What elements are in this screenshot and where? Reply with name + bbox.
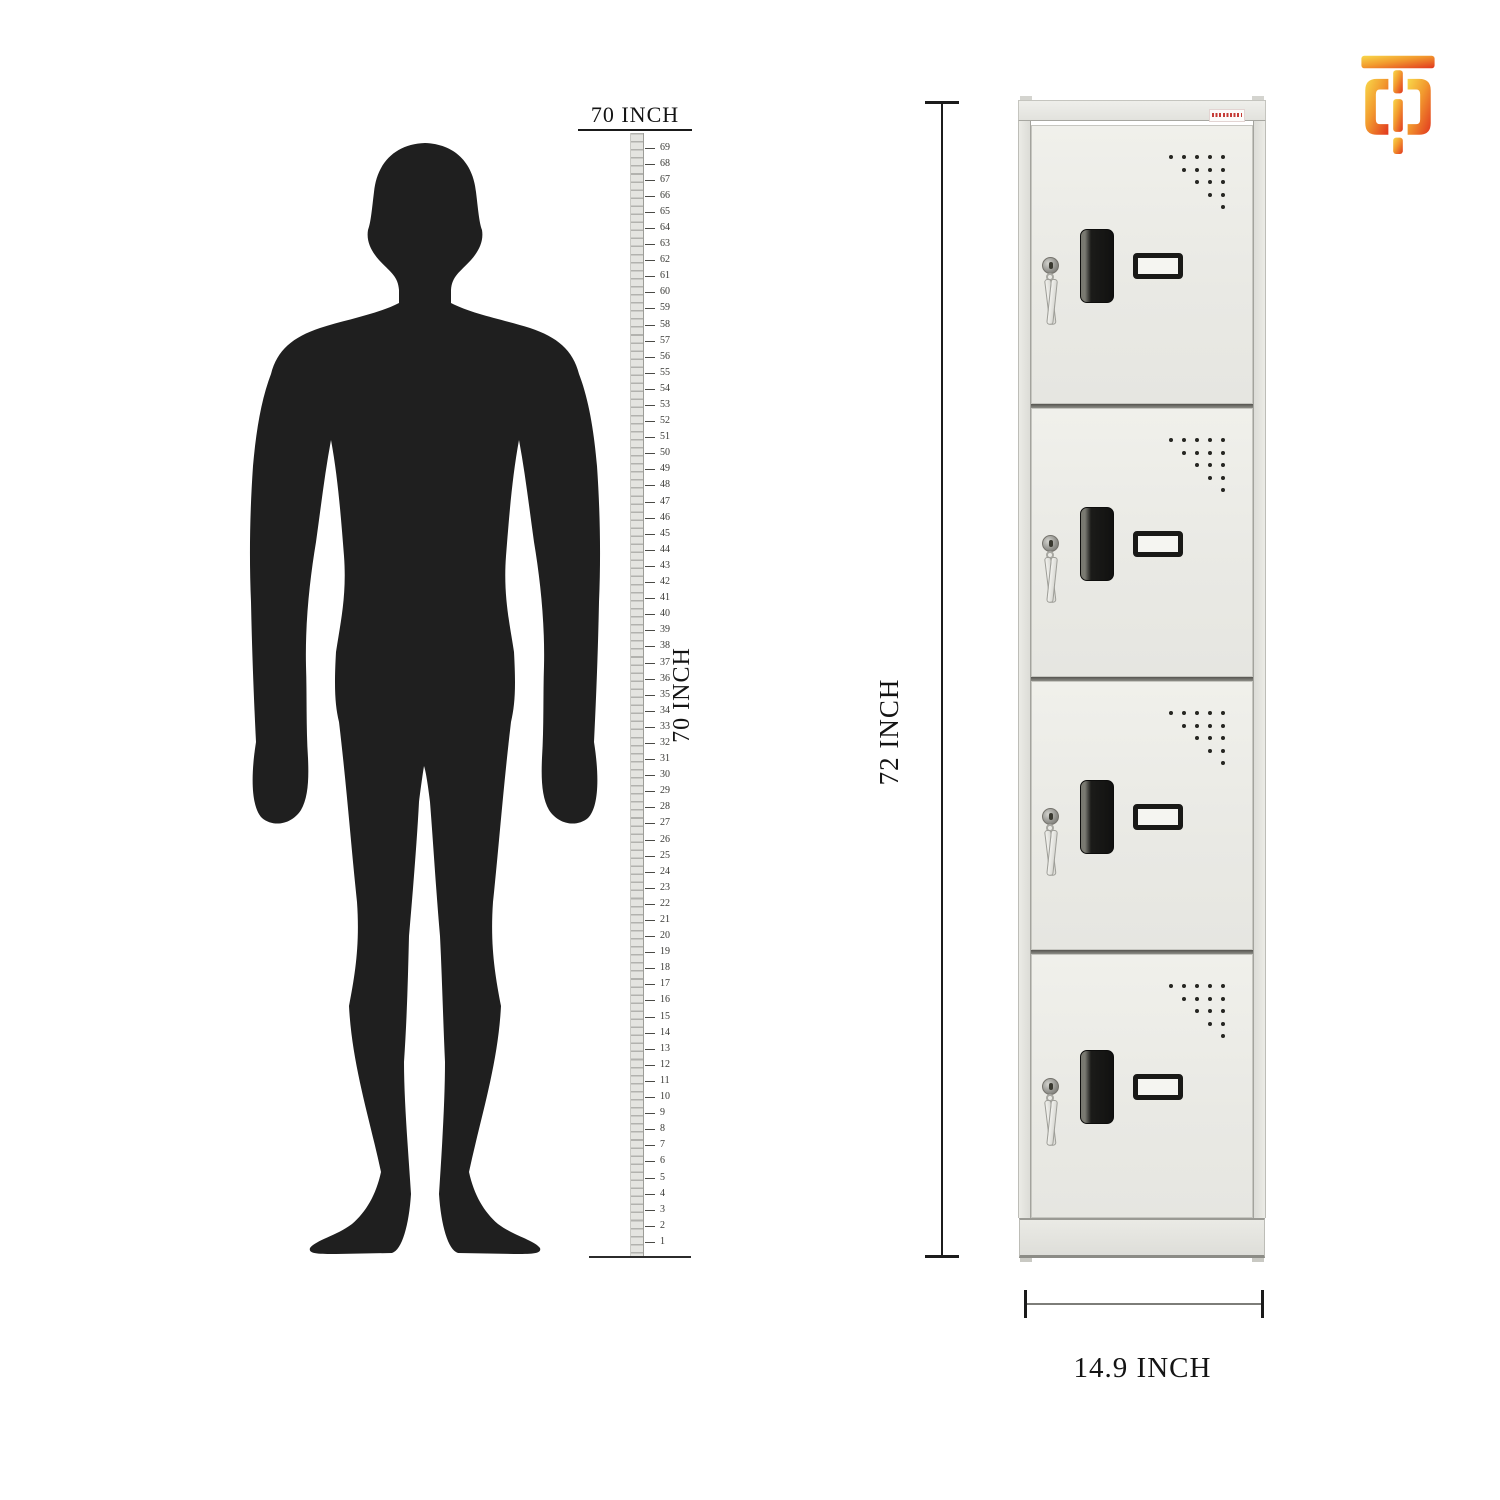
ruler-tick-number: 21 — [660, 914, 670, 925]
ruler-tick-line — [645, 1081, 655, 1082]
ruler-tick-line — [645, 614, 655, 615]
logo-left-bracket — [1365, 79, 1388, 135]
ruler-tick-number: 49 — [660, 463, 670, 474]
locker-width-label: 14.9 INCH — [1035, 1352, 1250, 1385]
keyhole-icon — [1049, 262, 1053, 269]
ruler-tick-line — [645, 598, 655, 599]
vent-hole — [1195, 711, 1199, 715]
ruler-tick-line — [645, 630, 655, 631]
ruler-tick-line — [645, 775, 655, 776]
ruler-tick-line — [645, 196, 655, 197]
ruler-tick-number: 6 — [660, 1155, 665, 1166]
vent-hole — [1195, 736, 1199, 740]
vent-hole — [1208, 1009, 1212, 1013]
ruler-tick-number: 56 — [660, 351, 670, 362]
vent-hole — [1195, 438, 1199, 442]
vent-hole — [1208, 749, 1212, 753]
vent-hole — [1195, 724, 1199, 728]
door-handle — [1080, 1050, 1114, 1124]
ruler-tick-line — [645, 228, 655, 229]
ruler-tick-number: 41 — [660, 592, 670, 603]
ruler-tick-line — [645, 711, 655, 712]
locker-top-cap — [1018, 100, 1266, 121]
locker-height-label: 72 INCH — [872, 667, 906, 797]
brand-logo — [1356, 50, 1440, 154]
ruler-tick-number: 54 — [660, 383, 670, 394]
locker-side-frame-left — [1018, 121, 1031, 1218]
ruler-tick-line — [645, 791, 655, 792]
vent-hole — [1221, 736, 1225, 740]
ruler-tick-line — [645, 260, 655, 261]
key-lock — [1042, 257, 1059, 274]
ruler-tick-number: 55 — [660, 367, 670, 378]
ruler-tick-line — [645, 566, 655, 567]
width-dimension-cap-right — [1261, 1290, 1264, 1318]
ruler-tick-number: 25 — [660, 850, 670, 861]
vent-hole — [1221, 451, 1225, 455]
ruler-tick-number: 10 — [660, 1091, 670, 1102]
vent-hole — [1195, 180, 1199, 184]
ruler-tick-line — [645, 212, 655, 213]
ruler-tick-number: 61 — [660, 270, 670, 281]
locker-side-frame-right — [1253, 121, 1266, 1218]
ruler-strip — [630, 133, 644, 1257]
ruler-tick-line — [645, 1065, 655, 1066]
vent-hole — [1195, 451, 1199, 455]
vent-hole — [1208, 168, 1212, 172]
ruler-tick-line — [645, 936, 655, 937]
ruler-tick-line — [645, 405, 655, 406]
vent-hole — [1221, 180, 1225, 184]
ruler-tick-line — [645, 646, 655, 647]
locker-door — [1031, 408, 1253, 677]
ruler-tick-number: 46 — [660, 512, 670, 523]
ruler-tick-line — [645, 727, 655, 728]
vent-hole — [1195, 997, 1199, 1001]
logo-top-bar — [1361, 56, 1434, 69]
height-dimension-line — [941, 103, 943, 1257]
logo-stem-bottom — [1393, 138, 1403, 154]
ruler-tick-line — [645, 292, 655, 293]
ruler-tick-line — [645, 1129, 655, 1130]
ruler-tick-number: 62 — [660, 254, 670, 265]
vent-hole — [1221, 438, 1225, 442]
key-lock — [1042, 808, 1059, 825]
label-card-holder — [1133, 804, 1183, 830]
ruler-tick-line — [645, 180, 655, 181]
locker-cabinet — [1018, 96, 1266, 1262]
ruler-tick-number: 16 — [660, 994, 670, 1005]
vent-hole — [1169, 984, 1173, 988]
brand-sticker-text — [1212, 113, 1242, 117]
human-silhouette — [245, 140, 605, 1255]
vent-hole — [1182, 438, 1186, 442]
door-handle — [1080, 780, 1114, 854]
vent-hole — [1169, 438, 1173, 442]
ruler-tick-number: 59 — [660, 302, 670, 313]
ruler-tick-number: 24 — [660, 866, 670, 877]
locker-door — [1031, 125, 1253, 404]
vent-hole — [1221, 463, 1225, 467]
ruler-tick-line — [645, 1226, 655, 1227]
keyhole-icon — [1049, 540, 1053, 547]
vent-hole — [1221, 168, 1225, 172]
vent-hole — [1208, 193, 1212, 197]
vent-hole — [1208, 438, 1212, 442]
vent-hole — [1221, 1009, 1225, 1013]
ruler-tick-number: 5 — [660, 1172, 665, 1183]
ruler-tick-number: 14 — [660, 1027, 670, 1038]
height-dimension-cap-bottom — [925, 1255, 959, 1258]
ruler-tick-number: 53 — [660, 399, 670, 410]
ruler-tick-number: 13 — [660, 1043, 670, 1054]
ruler-tick-line — [645, 164, 655, 165]
ruler-tick-number: 45 — [660, 528, 670, 539]
ruler-tick-number: 51 — [660, 431, 670, 442]
vent-hole — [1195, 984, 1199, 988]
ruler-tick-number: 39 — [660, 624, 670, 635]
vent-hole — [1221, 997, 1225, 1001]
vent-hole — [1208, 724, 1212, 728]
vent-hole — [1208, 984, 1212, 988]
brand-sticker — [1209, 109, 1245, 122]
vent-hole — [1208, 711, 1212, 715]
vent-hole — [1221, 476, 1225, 480]
ruler-tick-line — [645, 1017, 655, 1018]
ruler-tick-number: 50 — [660, 447, 670, 458]
ruler-tick-line — [645, 308, 655, 309]
ruler-tick-number: 20 — [660, 930, 670, 941]
key-lock — [1042, 1078, 1059, 1095]
ruler-tick-number: 3 — [660, 1204, 665, 1215]
ruler-tick-number: 67 — [660, 174, 670, 185]
locker-kick-plate — [1019, 1218, 1265, 1258]
vent-hole — [1195, 155, 1199, 159]
ruler-tick-line — [645, 1097, 655, 1098]
door-handle — [1080, 229, 1114, 303]
ruler-tick-line — [645, 679, 655, 680]
keyhole-icon — [1049, 813, 1053, 820]
ruler-tick-line — [645, 469, 655, 470]
vent-hole — [1208, 736, 1212, 740]
ruler-tick-line — [645, 148, 655, 149]
ruler-tick-number: 18 — [660, 962, 670, 973]
vent-hole — [1221, 193, 1225, 197]
logo-stem-mid — [1393, 99, 1403, 132]
ruler-tick-line — [645, 1000, 655, 1001]
vent-hole — [1221, 1034, 1225, 1038]
ruler-tick-number: 4 — [660, 1188, 665, 1199]
ruler-tick-line — [645, 1178, 655, 1179]
ruler-tick-line — [645, 389, 655, 390]
vent-hole — [1182, 984, 1186, 988]
vent-hole — [1221, 711, 1225, 715]
width-dimension-cap-left — [1024, 1290, 1027, 1318]
ruler-tick-number: 12 — [660, 1059, 670, 1070]
ruler-tick-number: 31 — [660, 753, 670, 764]
vent-hole — [1195, 1009, 1199, 1013]
vent-hole — [1208, 1022, 1212, 1026]
ruler-tick-line — [645, 325, 655, 326]
ruler-tick-number: 11 — [660, 1075, 670, 1086]
ruler-tick-line — [645, 695, 655, 696]
vent-hole — [1221, 749, 1225, 753]
ruler-tick-number: 9 — [660, 1107, 665, 1118]
vent-hole — [1221, 205, 1225, 209]
ruler-tick-number: 63 — [660, 238, 670, 249]
ruler-tick-line — [645, 421, 655, 422]
vent-hole — [1221, 1022, 1225, 1026]
ruler-tick-line — [645, 840, 655, 841]
ruler-tick-line — [645, 485, 655, 486]
ruler-tick-line — [645, 341, 655, 342]
ruler-tick-number: 40 — [660, 608, 670, 619]
label-card-holder — [1133, 1074, 1183, 1100]
vent-hole — [1195, 168, 1199, 172]
vent-hole — [1182, 724, 1186, 728]
ruler-tick-number: 1 — [660, 1236, 665, 1247]
ruler-tick-line — [645, 1113, 655, 1114]
label-card-holder — [1133, 531, 1183, 557]
label-card-holder — [1133, 253, 1183, 279]
ruler-tick-line — [645, 276, 655, 277]
vent-hole — [1169, 711, 1173, 715]
ruler-tick-line — [645, 437, 655, 438]
vent-hole — [1182, 997, 1186, 1001]
ruler-tick-number: 57 — [660, 335, 670, 346]
vent-hole — [1221, 761, 1225, 765]
door-handle — [1080, 507, 1114, 581]
ruler-tick-line — [645, 1033, 655, 1034]
ruler-tick-number: 66 — [660, 190, 670, 201]
ruler-tick-line — [645, 518, 655, 519]
logo-right-bracket — [1408, 79, 1431, 135]
vent-hole — [1208, 180, 1212, 184]
ruler-tick-number: 15 — [660, 1011, 670, 1022]
vent-hole — [1182, 168, 1186, 172]
ruler-tick-line — [645, 1049, 655, 1050]
ruler-tick-number: 7 — [660, 1139, 665, 1150]
ruler-tick-number: 52 — [660, 415, 670, 426]
width-dimension-line — [1025, 1303, 1263, 1305]
ruler-tick-number: 2 — [660, 1220, 665, 1231]
ruler-tick-number: 29 — [660, 785, 670, 796]
ruler-tick-line — [645, 1210, 655, 1211]
ruler-tick-number: 68 — [660, 158, 670, 169]
ruler-tick-number: 60 — [660, 286, 670, 297]
ruler-tick-number: 8 — [660, 1123, 665, 1134]
locker-door — [1031, 954, 1253, 1218]
ruler-tick-line — [645, 582, 655, 583]
ruler-tick-line — [645, 743, 655, 744]
ruler-tick-number: 43 — [660, 560, 670, 571]
vent-hole — [1208, 997, 1212, 1001]
ruler-tick-number: 47 — [660, 496, 670, 507]
vent-hole — [1195, 463, 1199, 467]
ruler-tick-line — [645, 1145, 655, 1146]
scale-top-line — [578, 129, 692, 131]
ruler-tick-line — [645, 1242, 655, 1243]
ruler-tick-number: 64 — [660, 222, 670, 233]
ruler-tick-line — [645, 453, 655, 454]
scale-top-label: 70 INCH — [560, 102, 710, 128]
ruler-tick-number: 26 — [660, 834, 670, 845]
ruler-tick-line — [645, 968, 655, 969]
ruler-tick-number: 48 — [660, 479, 670, 490]
ruler-tick-number: 65 — [660, 206, 670, 217]
locker-foot-right — [1252, 1258, 1264, 1262]
ruler-tick-number: 69 — [660, 142, 670, 153]
ruler-tick-line — [645, 357, 655, 358]
ruler-tick-number: 22 — [660, 898, 670, 909]
vent-hole — [1169, 155, 1173, 159]
ruler-tick-line — [645, 663, 655, 664]
ruler-tick-line — [645, 920, 655, 921]
ruler-tick-line — [645, 823, 655, 824]
locker-foot-left — [1020, 1258, 1032, 1262]
ruler-tick-line — [645, 872, 655, 873]
ruler-tick-number: 28 — [660, 801, 670, 812]
ruler-tick-line — [645, 502, 655, 503]
ruler-tick-number: 44 — [660, 544, 670, 555]
ruler-tick-number: 19 — [660, 946, 670, 957]
vent-hole — [1221, 488, 1225, 492]
vent-hole — [1182, 711, 1186, 715]
ruler-tick-number: 17 — [660, 978, 670, 989]
keyhole-icon — [1049, 1083, 1053, 1090]
ruler-tick-number: 58 — [660, 319, 670, 330]
ruler-tick-line — [645, 373, 655, 374]
ruler-tick-line — [645, 759, 655, 760]
vent-hole — [1182, 451, 1186, 455]
product-dimension-diagram: 70 INCH 69686766656463626160595857565554… — [0, 0, 1500, 1500]
scale-side-label: 70 INCH — [667, 640, 697, 750]
logo-stem-top — [1393, 70, 1403, 93]
locker-door — [1031, 681, 1253, 950]
ruler-tick-line — [645, 888, 655, 889]
ruler-tick-number: 42 — [660, 576, 670, 587]
ruler-tick-number: 27 — [660, 817, 670, 828]
ruler-tick-line — [645, 550, 655, 551]
ruler-tick-line — [645, 244, 655, 245]
ruler-tick-line — [645, 1194, 655, 1195]
key-lock — [1042, 535, 1059, 552]
vent-hole — [1182, 155, 1186, 159]
height-dimension-cap-top — [925, 101, 959, 104]
ruler-tick-line — [645, 904, 655, 905]
ruler-tick-number: 30 — [660, 769, 670, 780]
ruler-tick-line — [645, 1161, 655, 1162]
vent-hole — [1208, 155, 1212, 159]
vent-hole — [1221, 724, 1225, 728]
vent-hole — [1221, 984, 1225, 988]
ruler-tick-line — [645, 952, 655, 953]
vent-hole — [1208, 451, 1212, 455]
scale-bottom-line — [589, 1256, 691, 1258]
ruler-tick-line — [645, 534, 655, 535]
ruler-tick-line — [645, 807, 655, 808]
ruler-tick-line — [645, 856, 655, 857]
ruler-tick-number: 23 — [660, 882, 670, 893]
vent-hole — [1208, 463, 1212, 467]
ruler-tick-line — [645, 984, 655, 985]
vent-hole — [1208, 476, 1212, 480]
vent-hole — [1221, 155, 1225, 159]
